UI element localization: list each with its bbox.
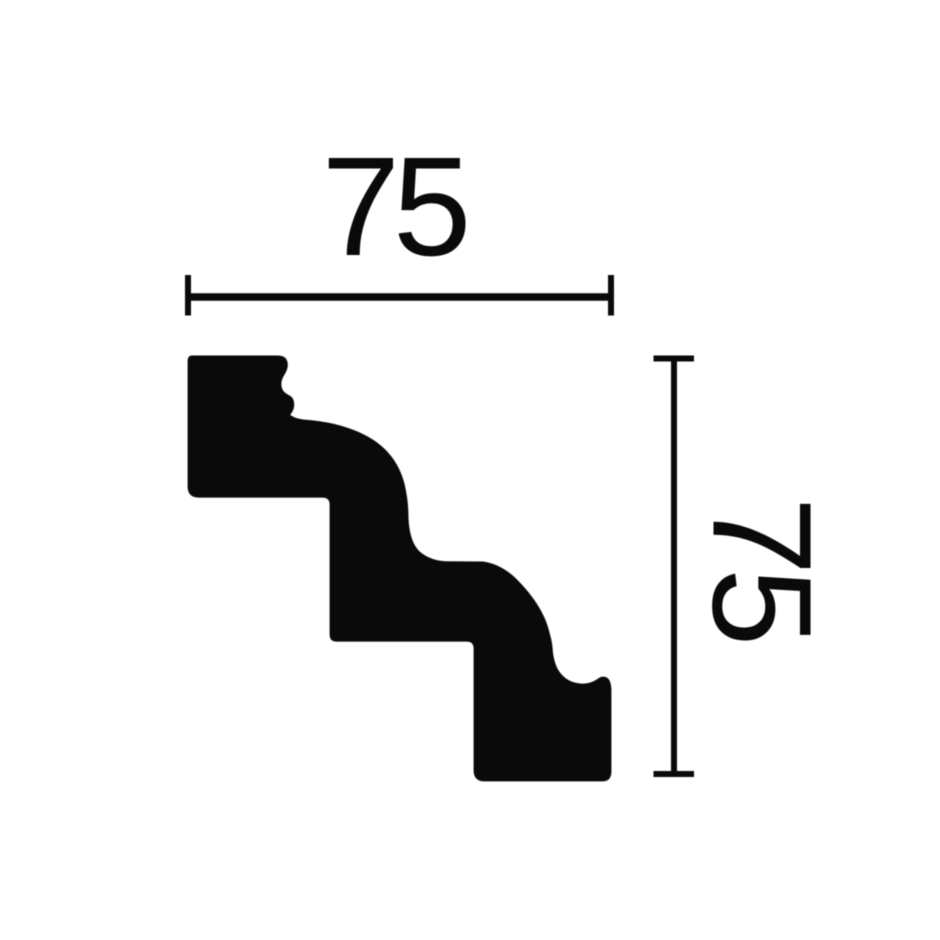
height-dimension: 75	[654, 359, 842, 775]
moulding-profile-diagram: 75 75	[0, 0, 940, 940]
width-dimension: 75	[188, 127, 611, 316]
width-dimension-label: 75	[322, 127, 466, 285]
height-dimension-label: 75	[684, 497, 842, 641]
moulding-profile-silhouette	[188, 356, 612, 782]
diagram-canvas: 75 75	[0, 0, 940, 940]
